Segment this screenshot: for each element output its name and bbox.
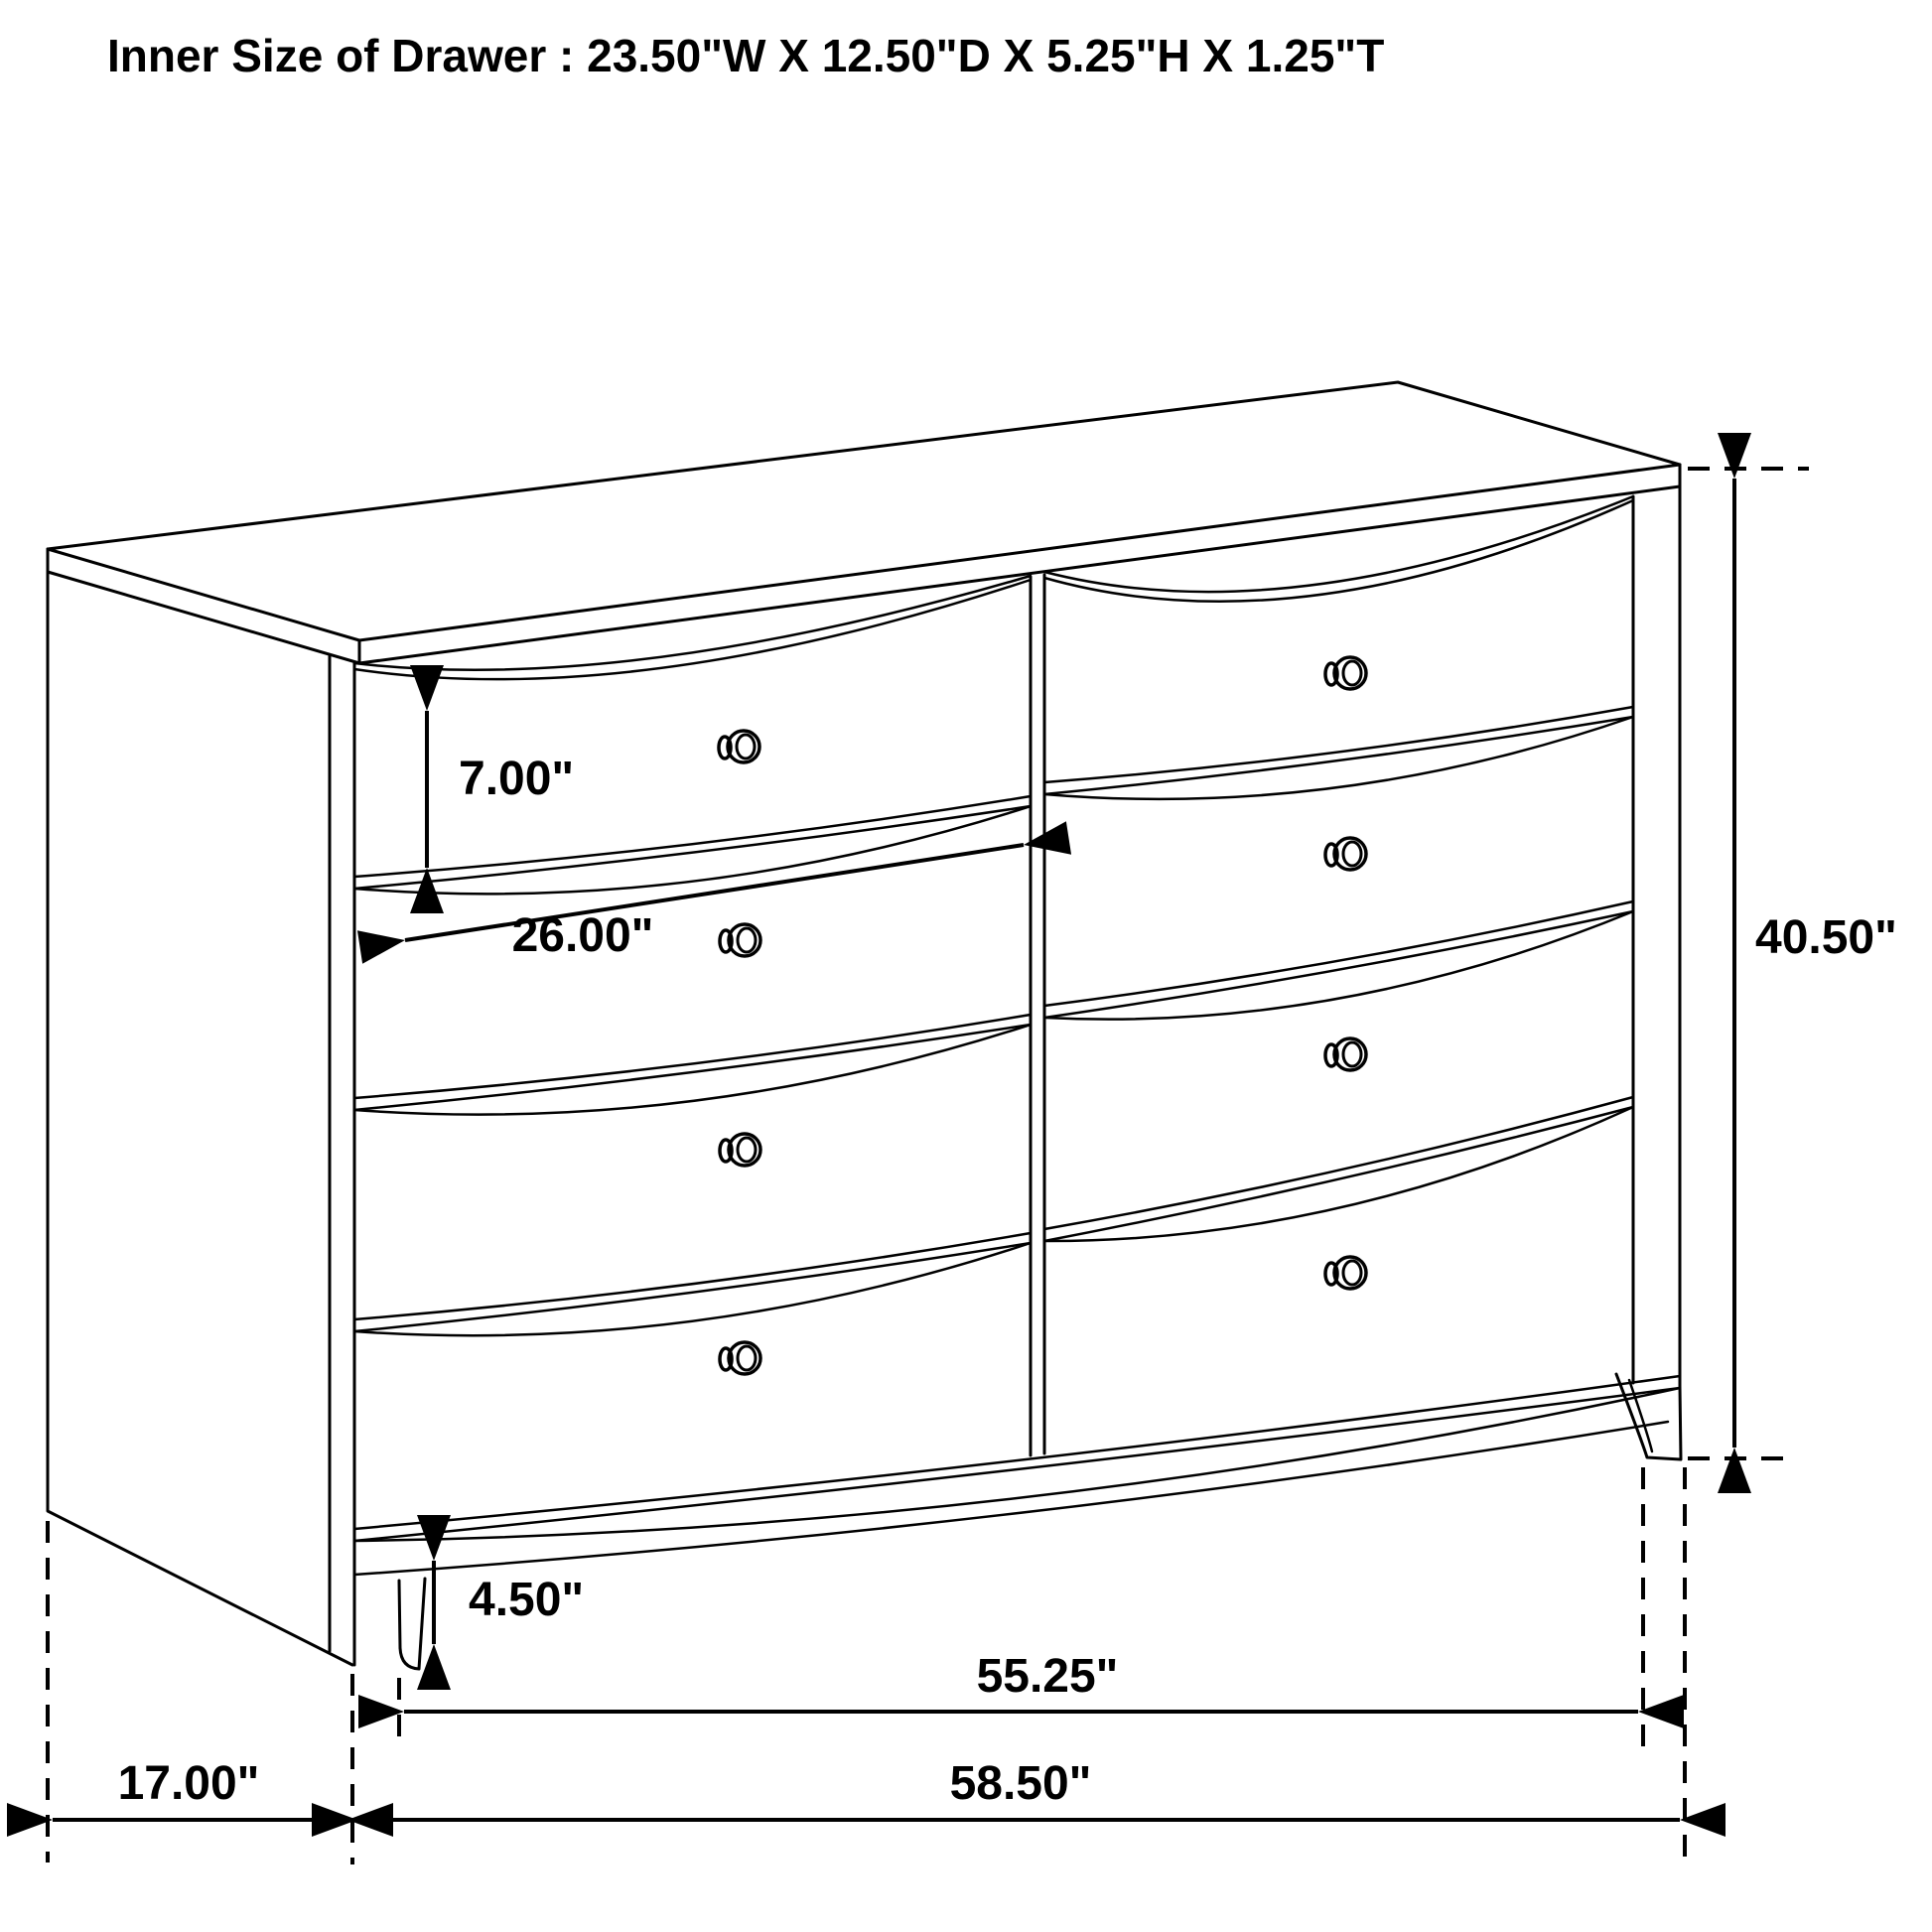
top-rail-curves <box>354 496 1633 679</box>
dim-arrow-drawer-opening-width <box>405 845 1024 940</box>
drawer-knob <box>1325 1038 1366 1070</box>
dresser-outline <box>48 382 1681 1669</box>
side-panel <box>48 572 354 1665</box>
bottom-apron <box>354 1376 1680 1575</box>
drawer-knob <box>720 924 760 956</box>
drawer-knob <box>1325 657 1366 689</box>
front-left-foot <box>399 1579 425 1669</box>
drawer-knob <box>719 731 759 762</box>
center-divider <box>1031 575 1044 1455</box>
dim-label-overall-height: 40.50" <box>1755 911 1897 964</box>
dim-label-drawer-front-height: 7.00" <box>459 753 574 805</box>
drawer-knob <box>1325 838 1366 870</box>
right-stile <box>1633 486 1680 1386</box>
dimension-arrows <box>53 479 1734 1820</box>
extension-lines <box>48 469 1809 1864</box>
dim-label-overall-width: 58.50" <box>950 1757 1092 1810</box>
drawing-title: Inner Size of Drawer : 23.50"W X 12.50"D… <box>107 30 1384 81</box>
dresser-dimension-drawing: Inner Size of Drawer : 23.50"W X 12.50"D… <box>0 0 1932 1932</box>
diagram-page: Inner Size of Drawer : 23.50"W X 12.50"D… <box>0 0 1932 1932</box>
front-right-foot <box>1616 1374 1681 1459</box>
dim-label-width-between-legs: 55.25" <box>977 1650 1119 1703</box>
dim-label-side-depth: 17.00" <box>118 1757 260 1810</box>
dim-label-drawer-opening-width: 26.00" <box>512 909 654 962</box>
dim-label-leg-height: 4.50" <box>469 1574 584 1626</box>
right-drawer-gaps <box>1044 707 1633 1241</box>
drawer-knob <box>1325 1257 1366 1289</box>
drawer-knob <box>720 1342 760 1374</box>
left-drawer-gaps <box>354 796 1031 1335</box>
drawer-knob <box>720 1134 760 1166</box>
